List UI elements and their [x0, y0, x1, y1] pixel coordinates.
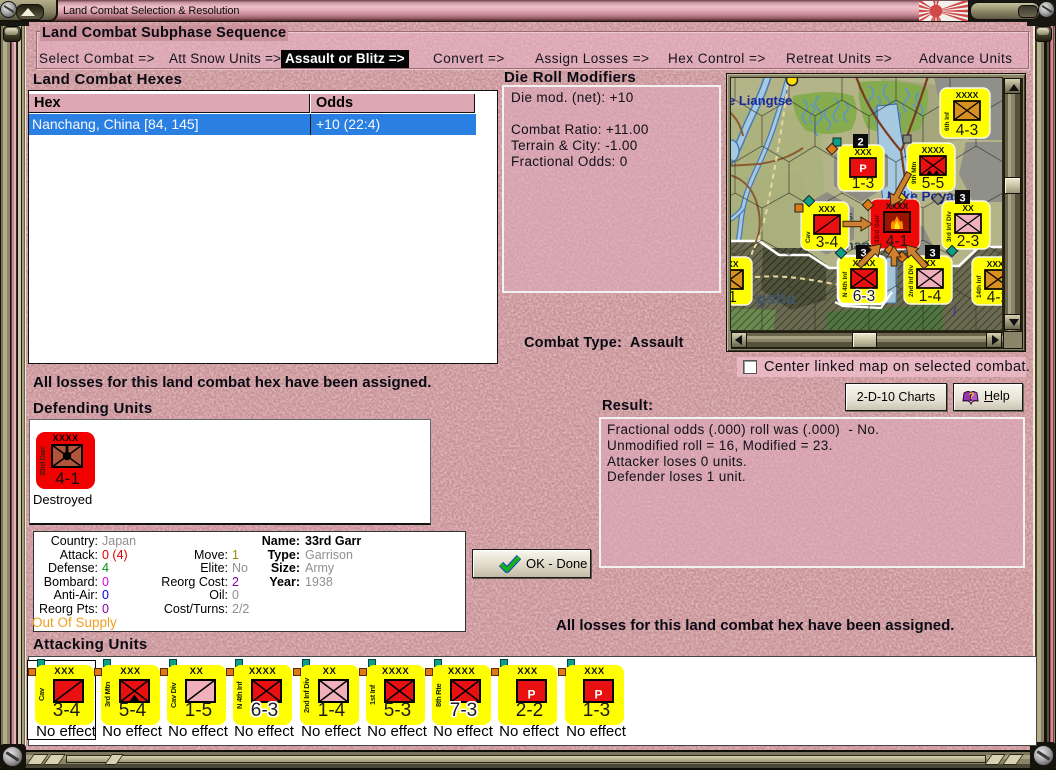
svg-text:6-3: 6-3: [853, 288, 875, 305]
svg-text:2: 2: [857, 137, 863, 149]
svg-text:XXXX: XXXX: [922, 145, 945, 155]
svg-text:33rd Garr: 33rd Garr: [874, 214, 881, 243]
svg-text:4-2: 4-2: [987, 289, 1002, 306]
svg-text:XXXX: XXXX: [987, 259, 1002, 269]
svg-text:XXX: XXX: [731, 259, 739, 269]
svg-text:XXX: XXX: [818, 204, 835, 214]
svg-text:3: 3: [959, 193, 965, 205]
svg-text:3-4: 3-4: [816, 234, 839, 251]
svg-text:XXXX: XXXX: [956, 90, 979, 100]
svg-text:XXX: XXX: [854, 147, 871, 157]
svg-text:N 4th Inf: N 4th Inf: [842, 271, 849, 297]
svg-text:P: P: [859, 163, 866, 175]
svg-text:1-3: 1-3: [852, 175, 874, 192]
svg-text:e Liangtse: e Liangtse: [731, 93, 792, 108]
svg-text:2-3: 2-3: [957, 233, 979, 250]
svg-text:4-3: 4-3: [956, 122, 978, 139]
svg-text:9th Mtn: 9th Mtn: [911, 161, 918, 184]
svg-text:?: ?: [969, 391, 975, 401]
svg-text:Cav: Cav: [805, 231, 812, 243]
svg-text:14th Inf: 14th Inf: [976, 275, 983, 298]
svg-text:XX: XX: [962, 203, 974, 213]
svg-text:-1: -1: [731, 289, 737, 306]
svg-text:3rd Inf Div: 3rd Inf Div: [946, 211, 953, 242]
svg-text:1-4: 1-4: [919, 288, 942, 305]
svg-text:gsha: gsha: [756, 289, 796, 308]
svg-text:6th Inf: 6th Inf: [944, 111, 951, 131]
svg-text:2nd Inf Div: 2nd Inf Div: [908, 264, 915, 297]
svg-text:3: 3: [929, 248, 935, 260]
svg-text:5-5: 5-5: [922, 175, 944, 192]
